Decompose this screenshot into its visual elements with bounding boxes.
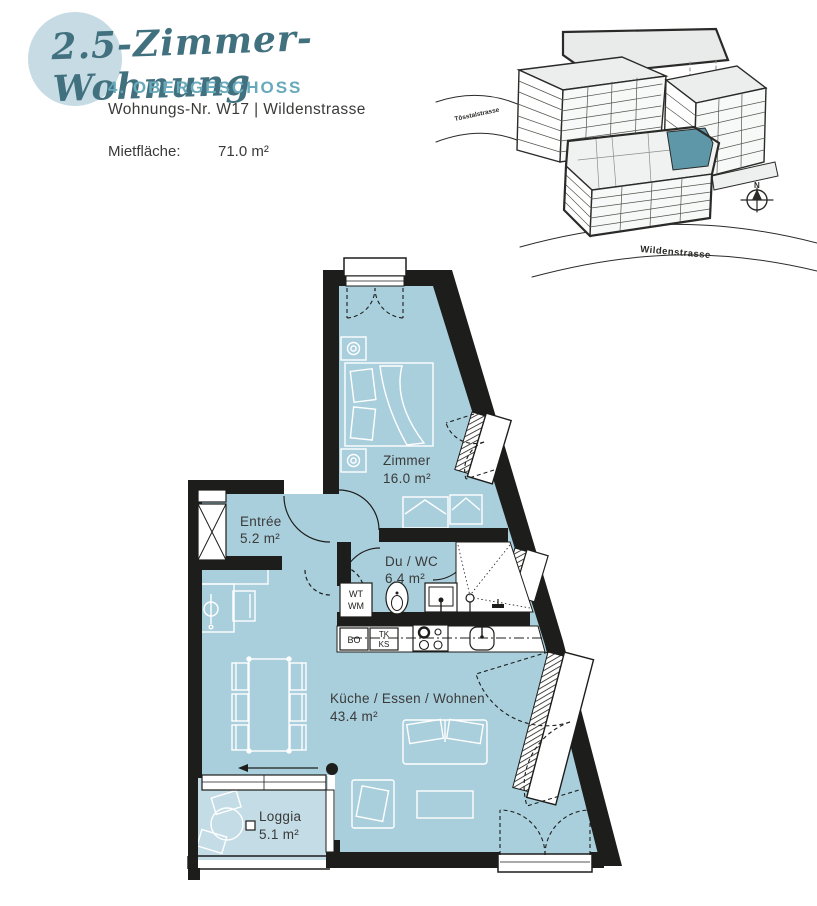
svg-text:KS: KS <box>379 640 390 649</box>
room-label-entree: Entrée <box>240 514 282 529</box>
floorplan-sheet: 2.5-Zimmer-Wohnung 4. OBERGESCHOSS Wohnu… <box>0 0 817 901</box>
room-area-zimmer: 16.0 m² <box>383 471 431 486</box>
svg-text:WM: WM <box>348 601 364 611</box>
room-area-entree: 5.2 m² <box>240 531 280 546</box>
kitchen: BO TK KS <box>337 625 545 652</box>
unit-number-label: Wohnungs-Nr. W17 | Wildenstrasse <box>108 101 366 119</box>
room-area-kueche: 43.4 m² <box>330 709 378 724</box>
washbasin <box>425 583 457 612</box>
washer-tower: WT WM <box>340 583 372 617</box>
svg-text:BO: BO <box>347 635 360 645</box>
toilet <box>386 582 408 614</box>
street-label-top: Tösstalstrasse <box>454 107 500 123</box>
street-label-bottom: Wildenstrasse <box>640 244 712 261</box>
column <box>326 763 338 775</box>
floor-label: 4. OBERGESCHOSS <box>108 78 302 98</box>
loggia-column <box>246 821 255 830</box>
rental-area-row: Mietfläche: 71.0 m² <box>108 143 181 160</box>
floor-plan: WT WM BO TK KS <box>188 258 622 880</box>
room-area-duwc: 6.4 m² <box>385 571 425 586</box>
north-arrow: N <box>741 181 773 212</box>
kitchen-sink <box>470 627 494 650</box>
site-illustration: Tösstalstrasse Wildenstrasse <box>436 29 817 277</box>
room-label-loggia: Loggia <box>259 809 302 824</box>
room-area-loggia: 5.1 m² <box>259 827 299 842</box>
room-label-kueche: Küche / Essen / Wohnen <box>330 691 485 706</box>
rental-area-label: Mietfläche: <box>108 143 181 160</box>
room-label-zimmer: Zimmer <box>383 453 431 468</box>
plan-graphics: Tösstalstrasse Wildenstrasse <box>0 0 817 901</box>
svg-text:WT: WT <box>349 589 363 599</box>
technical-shaft <box>198 490 226 560</box>
room-label-duwc: Du / WC <box>385 554 438 569</box>
building-front <box>564 127 719 236</box>
rental-area-value: 71.0 m² <box>218 143 269 160</box>
